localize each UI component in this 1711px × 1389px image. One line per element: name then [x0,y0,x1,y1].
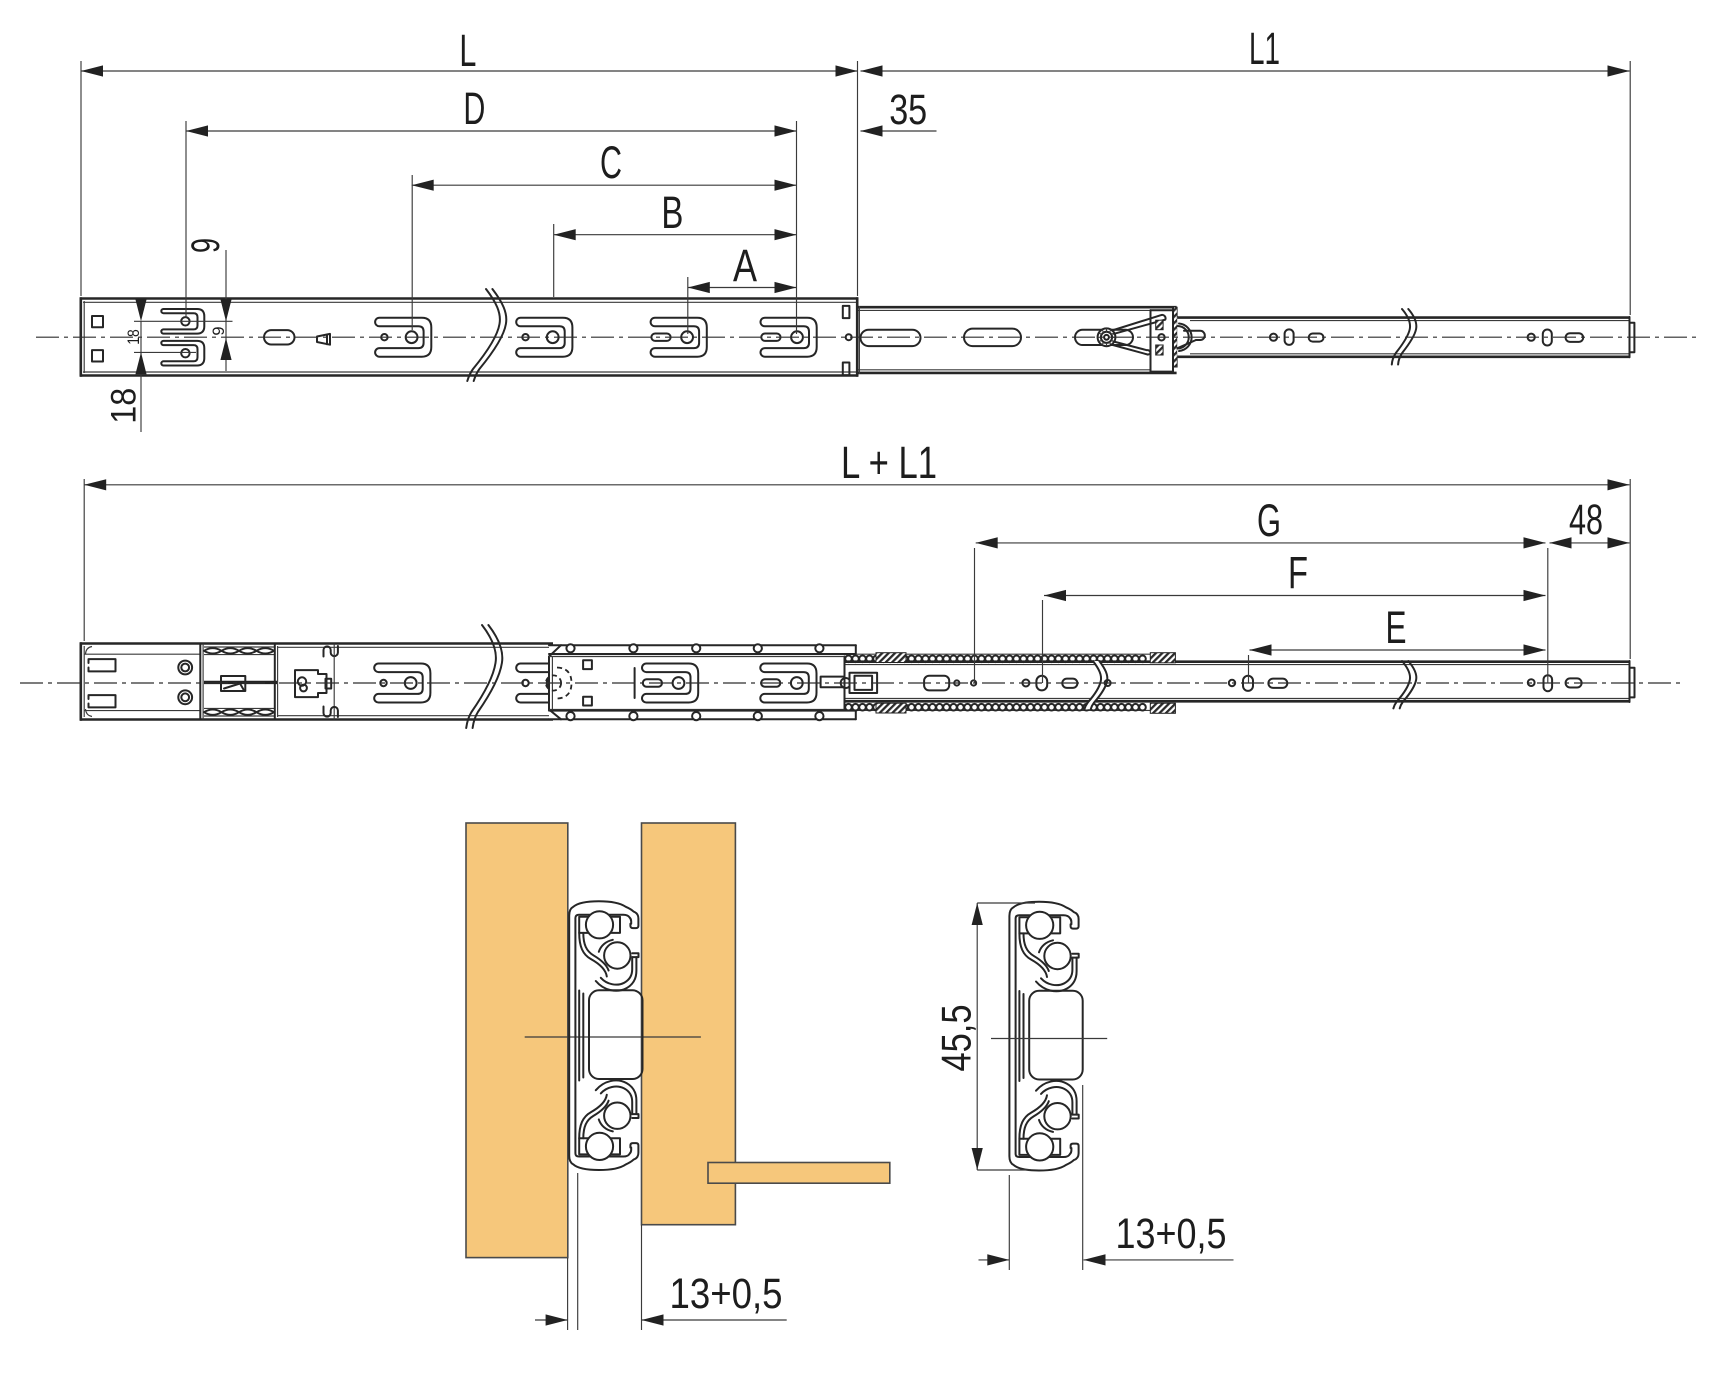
svg-text:E: E [1386,602,1407,653]
svg-text:35: 35 [889,86,927,134]
svg-text:45,5: 45,5 [933,1005,980,1072]
svg-text:C: C [600,137,622,188]
svg-text:G: G [1257,495,1281,546]
svg-text:D: D [463,83,485,134]
svg-text:9: 9 [184,238,228,253]
svg-text:L1: L1 [1249,23,1280,74]
svg-text:B: B [661,187,683,238]
svg-text:13+0,5: 13+0,5 [1116,1210,1227,1258]
svg-text:F: F [1288,547,1308,598]
svg-text:13+0,5: 13+0,5 [670,1270,783,1318]
svg-text:L: L [459,25,476,76]
svg-text:A: A [733,240,757,291]
svg-text:48: 48 [1569,496,1603,544]
svg-text:9: 9 [210,326,228,335]
svg-text:L + L1: L + L1 [841,437,937,488]
svg-text:18: 18 [125,329,143,344]
svg-text:18: 18 [105,388,144,424]
